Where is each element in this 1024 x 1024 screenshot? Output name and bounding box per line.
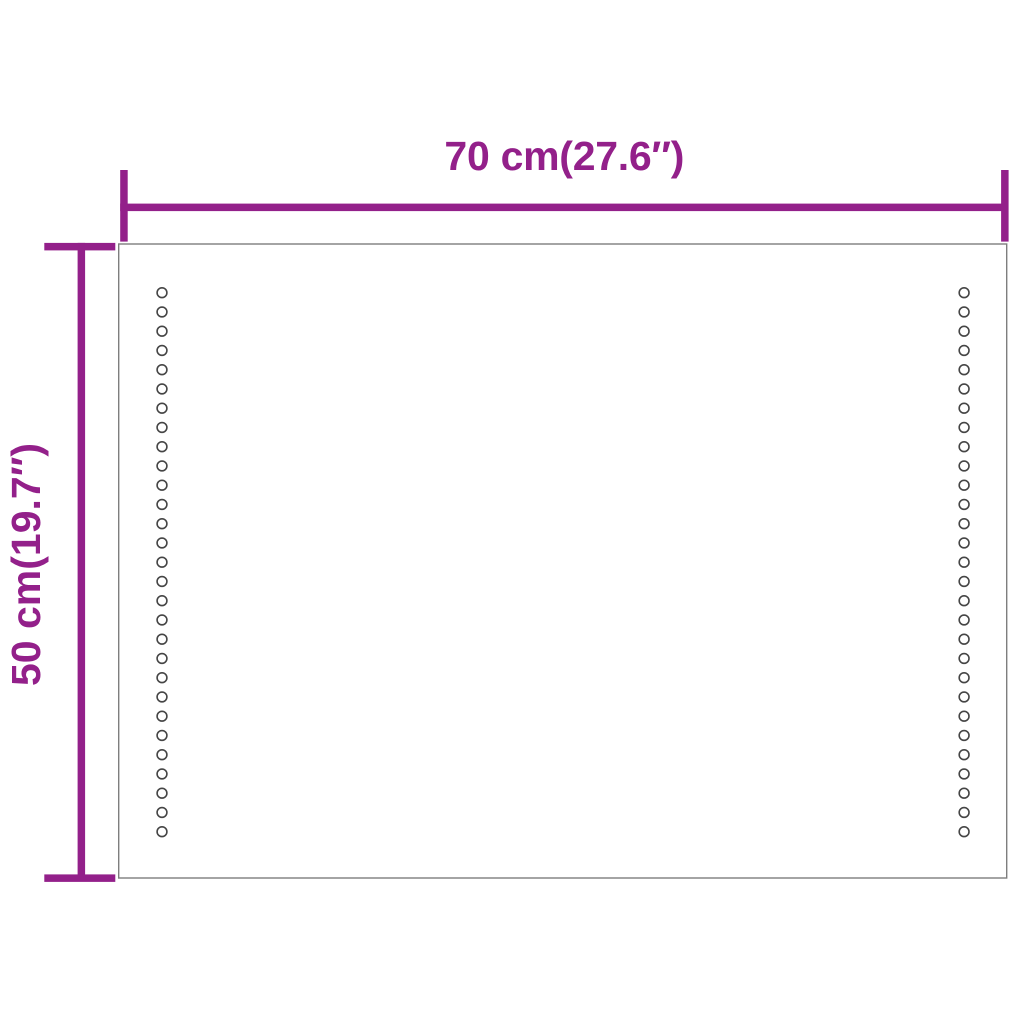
- svg-text:50 cm(19.7″): 50 cm(19.7″): [3, 443, 49, 686]
- svg-text:70 cm(27.6″): 70 cm(27.6″): [444, 133, 684, 179]
